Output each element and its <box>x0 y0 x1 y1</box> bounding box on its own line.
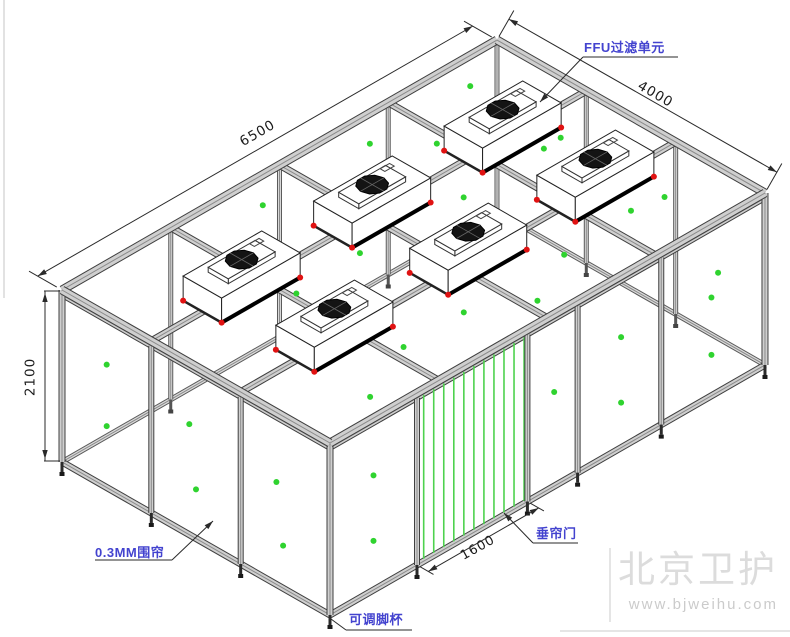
watermark-url: www.bjweihu.com <box>629 597 778 612</box>
adjustable-foot-label: 可调脚杯 <box>349 613 403 626</box>
cad-drawing-page: 6500 4000 2100 1600 FFU过滤单元 0.3MM围帘 垂帘门 … <box>0 0 790 637</box>
dimension-height-text: 2100 <box>24 358 38 396</box>
curtain-label: 0.3MM围帘 <box>95 546 164 559</box>
ffu-filter-unit-label: FFU过滤单元 <box>584 41 665 54</box>
curtain-door-label: 垂帘门 <box>536 527 577 540</box>
watermark-brand: 北京卫护 <box>618 551 778 588</box>
